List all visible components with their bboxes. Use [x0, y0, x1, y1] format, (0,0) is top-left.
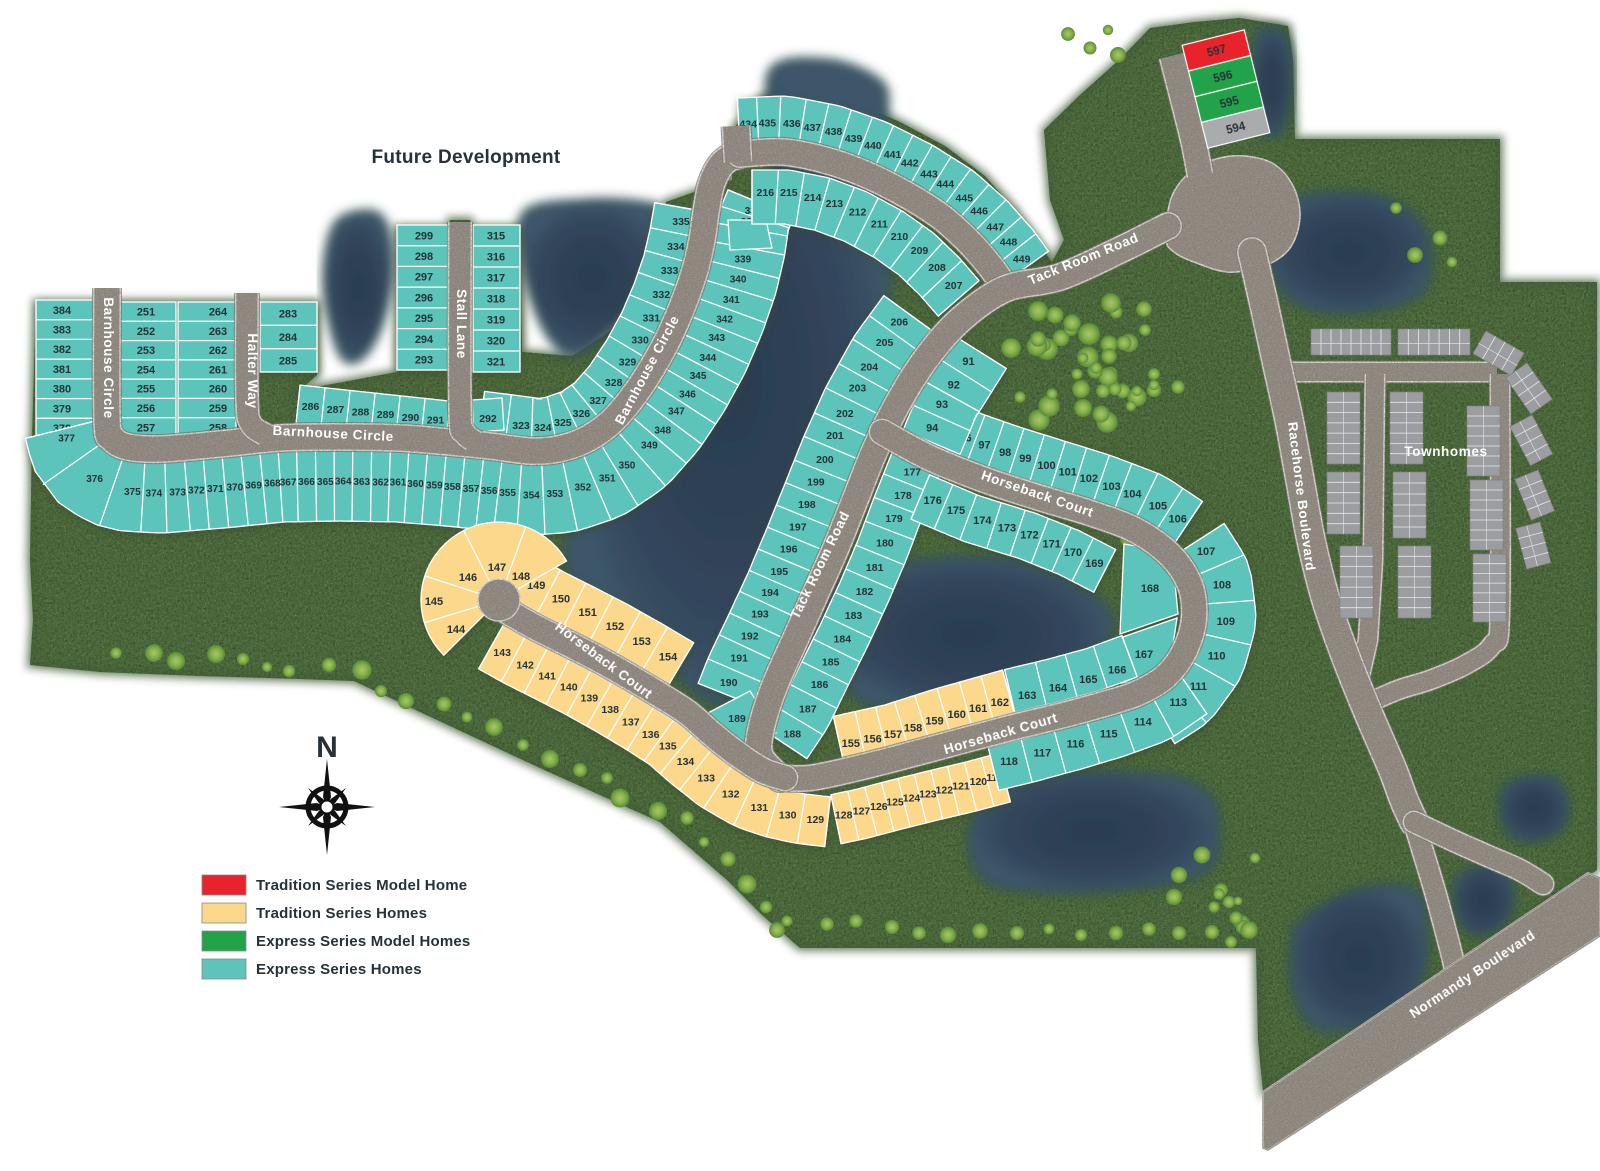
svg-text:316: 316	[487, 252, 505, 264]
svg-text:324: 324	[534, 422, 552, 434]
svg-text:Tradition Series Model Home: Tradition Series Model Home	[256, 877, 467, 894]
svg-text:151: 151	[579, 607, 597, 619]
svg-text:359: 359	[426, 481, 443, 492]
svg-text:194: 194	[761, 587, 779, 599]
svg-text:157: 157	[884, 729, 902, 741]
svg-text:436: 436	[783, 118, 801, 130]
svg-text:195: 195	[771, 566, 789, 578]
svg-text:196: 196	[780, 544, 798, 556]
svg-text:Express Series Homes: Express Series Homes	[256, 961, 422, 978]
svg-text:141: 141	[538, 670, 556, 682]
svg-text:323: 323	[512, 420, 530, 432]
svg-text:208: 208	[928, 262, 946, 274]
svg-text:100: 100	[1037, 460, 1055, 472]
svg-text:Barnhouse Circle: Barnhouse Circle	[101, 297, 116, 418]
svg-text:133: 133	[697, 773, 715, 785]
svg-text:137: 137	[622, 717, 640, 729]
svg-text:114: 114	[1134, 717, 1153, 729]
svg-text:158: 158	[904, 722, 922, 734]
svg-text:344: 344	[700, 353, 717, 364]
svg-text:109: 109	[1217, 616, 1235, 628]
svg-text:256: 256	[137, 403, 155, 415]
svg-text:163: 163	[1018, 690, 1036, 702]
svg-text:139: 139	[581, 693, 599, 705]
svg-text:184: 184	[834, 634, 852, 646]
svg-text:326: 326	[573, 408, 591, 420]
svg-text:374: 374	[146, 488, 163, 499]
svg-text:210: 210	[891, 231, 909, 243]
svg-text:108: 108	[1213, 579, 1231, 591]
svg-text:164: 164	[1049, 683, 1068, 695]
svg-text:341: 341	[723, 295, 740, 306]
svg-text:342: 342	[716, 315, 733, 326]
svg-text:178: 178	[894, 490, 912, 502]
svg-text:360: 360	[407, 479, 424, 490]
svg-text:115: 115	[1100, 729, 1118, 741]
svg-text:143: 143	[493, 647, 511, 659]
svg-text:174: 174	[973, 515, 992, 527]
svg-text:290: 290	[402, 412, 420, 424]
svg-text:285: 285	[279, 355, 297, 367]
svg-text:204: 204	[861, 362, 879, 374]
svg-text:330: 330	[631, 335, 649, 347]
svg-text:92: 92	[948, 379, 960, 391]
svg-text:209: 209	[911, 245, 929, 257]
svg-text:116: 116	[1067, 739, 1085, 751]
svg-text:110: 110	[1208, 650, 1226, 662]
svg-text:333: 333	[661, 265, 679, 277]
svg-text:212: 212	[849, 207, 867, 219]
svg-text:205: 205	[876, 337, 894, 349]
svg-text:197: 197	[789, 522, 807, 534]
svg-text:261: 261	[209, 365, 227, 377]
svg-text:176: 176	[924, 495, 942, 507]
svg-text:161: 161	[969, 703, 987, 715]
svg-text:173: 173	[998, 522, 1016, 534]
svg-text:362: 362	[372, 477, 389, 488]
svg-text:214: 214	[804, 192, 822, 204]
svg-text:211: 211	[871, 219, 888, 231]
svg-text:369: 369	[245, 481, 262, 492]
svg-text:252: 252	[137, 326, 155, 338]
svg-text:328: 328	[605, 377, 623, 389]
svg-text:130: 130	[779, 810, 797, 822]
svg-text:166: 166	[1108, 664, 1126, 676]
svg-text:329: 329	[619, 356, 637, 368]
svg-text:101: 101	[1059, 466, 1077, 478]
svg-text:319: 319	[487, 315, 505, 327]
svg-text:111: 111	[1190, 681, 1207, 693]
svg-text:335: 335	[672, 216, 690, 228]
svg-text:140: 140	[560, 682, 578, 694]
svg-text:193: 193	[751, 609, 769, 621]
svg-text:298: 298	[415, 251, 433, 263]
svg-text:162: 162	[991, 697, 1009, 709]
svg-text:107: 107	[1197, 546, 1215, 558]
svg-text:182: 182	[856, 586, 874, 598]
svg-text:364: 364	[335, 477, 352, 488]
svg-text:145: 145	[425, 596, 443, 608]
svg-text:297: 297	[415, 272, 433, 284]
svg-text:347: 347	[668, 406, 685, 417]
svg-text:Halter Way: Halter Way	[245, 333, 260, 408]
svg-text:127: 127	[853, 806, 871, 818]
svg-text:187: 187	[799, 703, 817, 715]
svg-text:260: 260	[209, 384, 227, 396]
svg-text:292: 292	[479, 413, 497, 425]
svg-text:253: 253	[137, 345, 155, 357]
svg-text:380: 380	[53, 384, 71, 396]
svg-text:148: 148	[512, 571, 530, 583]
svg-text:105: 105	[1149, 500, 1167, 512]
svg-text:449: 449	[1013, 253, 1031, 265]
svg-text:123: 123	[919, 788, 937, 800]
svg-text:295: 295	[415, 313, 433, 325]
svg-text:Future Development: Future Development	[371, 147, 560, 168]
svg-text:203: 203	[849, 383, 867, 395]
svg-text:201: 201	[826, 430, 844, 442]
svg-text:97: 97	[978, 440, 990, 452]
svg-text:262: 262	[209, 345, 227, 357]
svg-text:264: 264	[209, 307, 228, 319]
svg-text:106: 106	[1169, 514, 1187, 526]
svg-text:167: 167	[1135, 649, 1153, 661]
svg-text:263: 263	[209, 326, 227, 338]
svg-text:159: 159	[925, 716, 943, 728]
svg-text:104: 104	[1123, 489, 1142, 501]
svg-text:356: 356	[481, 486, 498, 497]
svg-text:365: 365	[317, 477, 334, 488]
svg-text:165: 165	[1079, 674, 1097, 686]
svg-text:383: 383	[53, 325, 71, 337]
svg-text:291: 291	[427, 414, 445, 426]
svg-text:Tradition Series Homes: Tradition Series Homes	[256, 905, 427, 922]
svg-text:384: 384	[53, 305, 72, 317]
svg-text:Townhomes: Townhomes	[1404, 444, 1487, 459]
svg-text:255: 255	[137, 384, 155, 396]
svg-text:98: 98	[999, 447, 1011, 459]
svg-text:135: 135	[659, 741, 677, 753]
svg-text:447: 447	[986, 221, 1004, 233]
svg-text:286: 286	[302, 401, 320, 413]
svg-text:371: 371	[207, 484, 224, 495]
svg-text:382: 382	[53, 344, 71, 356]
svg-text:120: 120	[970, 776, 988, 788]
svg-text:351: 351	[599, 473, 616, 484]
svg-text:Express Series Model Homes: Express Series Model Homes	[256, 933, 470, 950]
svg-text:368: 368	[264, 479, 281, 490]
svg-text:372: 372	[188, 486, 205, 497]
svg-text:350: 350	[619, 460, 636, 471]
svg-text:168: 168	[1141, 583, 1159, 595]
svg-text:155: 155	[842, 738, 860, 750]
svg-text:358: 358	[444, 482, 461, 493]
svg-text:376: 376	[86, 474, 103, 485]
svg-text:283: 283	[279, 309, 297, 321]
svg-text:Stall Lane: Stall Lane	[454, 289, 469, 359]
svg-text:325: 325	[554, 417, 572, 429]
svg-text:442: 442	[901, 158, 919, 170]
svg-text:345: 345	[690, 371, 707, 382]
svg-text:373: 373	[169, 487, 186, 498]
svg-text:132: 132	[722, 789, 740, 801]
svg-text:154: 154	[659, 652, 678, 664]
svg-text:113: 113	[1169, 697, 1187, 709]
svg-text:185: 185	[822, 657, 840, 669]
svg-text:169: 169	[1085, 558, 1103, 570]
svg-text:353: 353	[547, 489, 564, 500]
svg-text:254: 254	[137, 365, 156, 377]
svg-text:288: 288	[352, 406, 370, 418]
svg-text:348: 348	[654, 425, 671, 436]
svg-text:131: 131	[751, 802, 769, 814]
svg-text:287: 287	[327, 404, 345, 416]
svg-text:192: 192	[741, 630, 759, 642]
svg-text:118: 118	[1000, 756, 1018, 768]
svg-text:190: 190	[720, 677, 738, 689]
svg-text:257: 257	[137, 422, 155, 434]
svg-text:437: 437	[804, 122, 822, 134]
svg-text:355: 355	[499, 488, 516, 499]
svg-text:102: 102	[1080, 473, 1098, 485]
svg-text:128: 128	[835, 809, 853, 821]
svg-text:284: 284	[279, 332, 298, 344]
svg-text:199: 199	[807, 477, 825, 489]
svg-text:251: 251	[137, 307, 155, 319]
svg-text:294: 294	[415, 334, 434, 346]
svg-text:124: 124	[903, 793, 921, 805]
svg-text:183: 183	[845, 610, 863, 622]
svg-text:200: 200	[816, 454, 834, 466]
svg-text:331: 331	[643, 312, 661, 324]
svg-text:172: 172	[1020, 530, 1038, 542]
svg-text:366: 366	[298, 477, 315, 488]
svg-text:180: 180	[876, 537, 894, 549]
svg-text:439: 439	[845, 133, 863, 145]
svg-text:332: 332	[653, 289, 671, 301]
svg-text:445: 445	[956, 192, 974, 204]
svg-text:340: 340	[730, 274, 747, 285]
svg-text:339: 339	[734, 254, 751, 265]
svg-text:320: 320	[487, 336, 505, 348]
svg-text:160: 160	[948, 709, 966, 721]
svg-text:206: 206	[891, 317, 909, 329]
svg-text:443: 443	[920, 169, 938, 181]
svg-text:215: 215	[780, 187, 798, 199]
svg-text:142: 142	[516, 659, 534, 671]
svg-text:343: 343	[708, 333, 725, 344]
svg-text:126: 126	[870, 801, 888, 813]
svg-text:207: 207	[945, 280, 963, 292]
svg-text:181: 181	[866, 562, 884, 574]
svg-text:370: 370	[226, 482, 243, 493]
svg-text:153: 153	[633, 636, 651, 648]
svg-text:363: 363	[353, 477, 370, 488]
svg-text:191: 191	[730, 653, 748, 665]
svg-text:136: 136	[642, 729, 660, 741]
svg-text:94: 94	[926, 423, 939, 435]
svg-text:352: 352	[574, 483, 591, 494]
svg-text:171: 171	[1043, 538, 1061, 550]
svg-text:334: 334	[667, 241, 685, 253]
svg-text:175: 175	[947, 505, 965, 517]
svg-text:179: 179	[885, 513, 903, 525]
svg-text:186: 186	[811, 679, 829, 691]
svg-text:144: 144	[447, 624, 466, 636]
svg-text:147: 147	[488, 562, 506, 574]
svg-text:321: 321	[487, 357, 505, 369]
svg-text:121: 121	[952, 781, 970, 793]
svg-text:440: 440	[864, 140, 882, 152]
svg-text:444: 444	[937, 179, 955, 191]
svg-text:361: 361	[390, 478, 407, 489]
svg-text:346: 346	[679, 390, 696, 401]
svg-text:103: 103	[1102, 481, 1120, 493]
svg-text:216: 216	[757, 187, 775, 199]
svg-text:293: 293	[415, 355, 433, 367]
svg-text:198: 198	[798, 499, 816, 511]
svg-text:93: 93	[936, 399, 948, 411]
svg-text:138: 138	[601, 704, 619, 716]
svg-text:381: 381	[53, 364, 71, 376]
svg-text:315: 315	[487, 231, 505, 243]
svg-text:152: 152	[606, 621, 624, 633]
svg-text:375: 375	[124, 487, 141, 498]
svg-text:213: 213	[826, 198, 844, 210]
svg-text:379: 379	[53, 403, 71, 415]
svg-text:318: 318	[487, 294, 505, 306]
svg-text:299: 299	[415, 230, 433, 242]
svg-text:296: 296	[415, 293, 433, 305]
svg-text:377: 377	[58, 433, 75, 444]
svg-text:134: 134	[677, 756, 695, 768]
svg-text:441: 441	[884, 149, 902, 161]
svg-text:125: 125	[886, 797, 904, 809]
svg-text:327: 327	[589, 395, 607, 407]
svg-text:438: 438	[825, 126, 843, 138]
svg-text:156: 156	[863, 733, 881, 745]
svg-text:435: 435	[759, 118, 777, 130]
svg-text:117: 117	[1034, 748, 1052, 760]
svg-text:354: 354	[523, 491, 540, 502]
svg-text:448: 448	[1000, 236, 1018, 248]
svg-text:150: 150	[552, 594, 570, 606]
svg-text:91: 91	[962, 356, 974, 368]
svg-text:129: 129	[807, 814, 825, 826]
svg-text:317: 317	[487, 273, 505, 285]
svg-text:146: 146	[459, 572, 477, 584]
svg-text:202: 202	[836, 408, 854, 420]
svg-text:289: 289	[377, 409, 395, 421]
svg-text:170: 170	[1064, 547, 1082, 559]
svg-text:367: 367	[280, 478, 297, 489]
svg-text:189: 189	[728, 713, 746, 725]
svg-text:122: 122	[936, 785, 954, 797]
svg-text:349: 349	[641, 441, 658, 452]
svg-text:99: 99	[1019, 453, 1031, 465]
svg-text:357: 357	[463, 484, 480, 495]
svg-text:188: 188	[784, 728, 802, 740]
svg-text:446: 446	[970, 206, 988, 218]
svg-text:259: 259	[209, 403, 227, 415]
